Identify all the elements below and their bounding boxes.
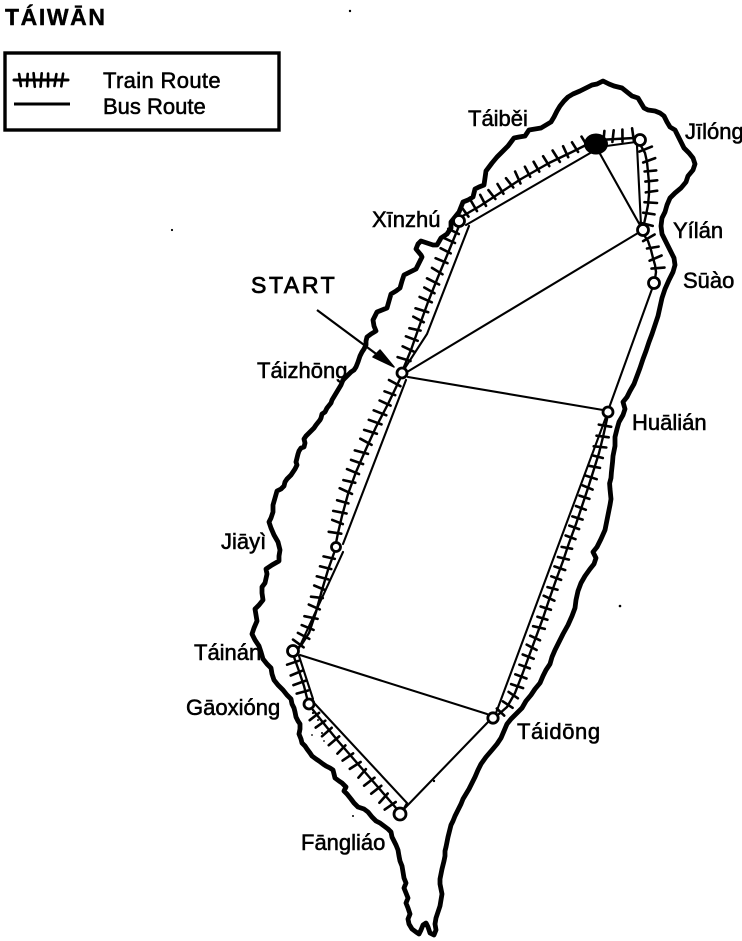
svg-text:Jiāyì: Jiāyì	[221, 529, 266, 554]
svg-text:Xīnzhú: Xīnzhú	[372, 207, 441, 232]
svg-text:Táiběi: Táiběi	[468, 106, 528, 131]
svg-text:Fāngliáo: Fāngliáo	[301, 830, 385, 855]
svg-text:Train Route: Train Route	[103, 68, 221, 93]
svg-text:Táidōng: Táidōng	[517, 719, 601, 744]
svg-text:START: START	[251, 272, 337, 298]
svg-text:Gāoxióng: Gāoxióng	[186, 695, 280, 720]
svg-text:Jīlóng: Jīlóng	[685, 119, 742, 144]
svg-text:Huālián: Huālián	[632, 410, 707, 435]
svg-text:Yílán: Yílán	[673, 218, 723, 243]
svg-text:TÁIWĀN: TÁIWĀN	[5, 3, 107, 30]
svg-text:Táizhōng: Táizhōng	[257, 358, 348, 383]
svg-text:Sūào: Sūào	[683, 268, 734, 293]
svg-text:Táinán: Táinán	[194, 640, 261, 665]
svg-text:Bus Route: Bus Route	[103, 94, 206, 119]
